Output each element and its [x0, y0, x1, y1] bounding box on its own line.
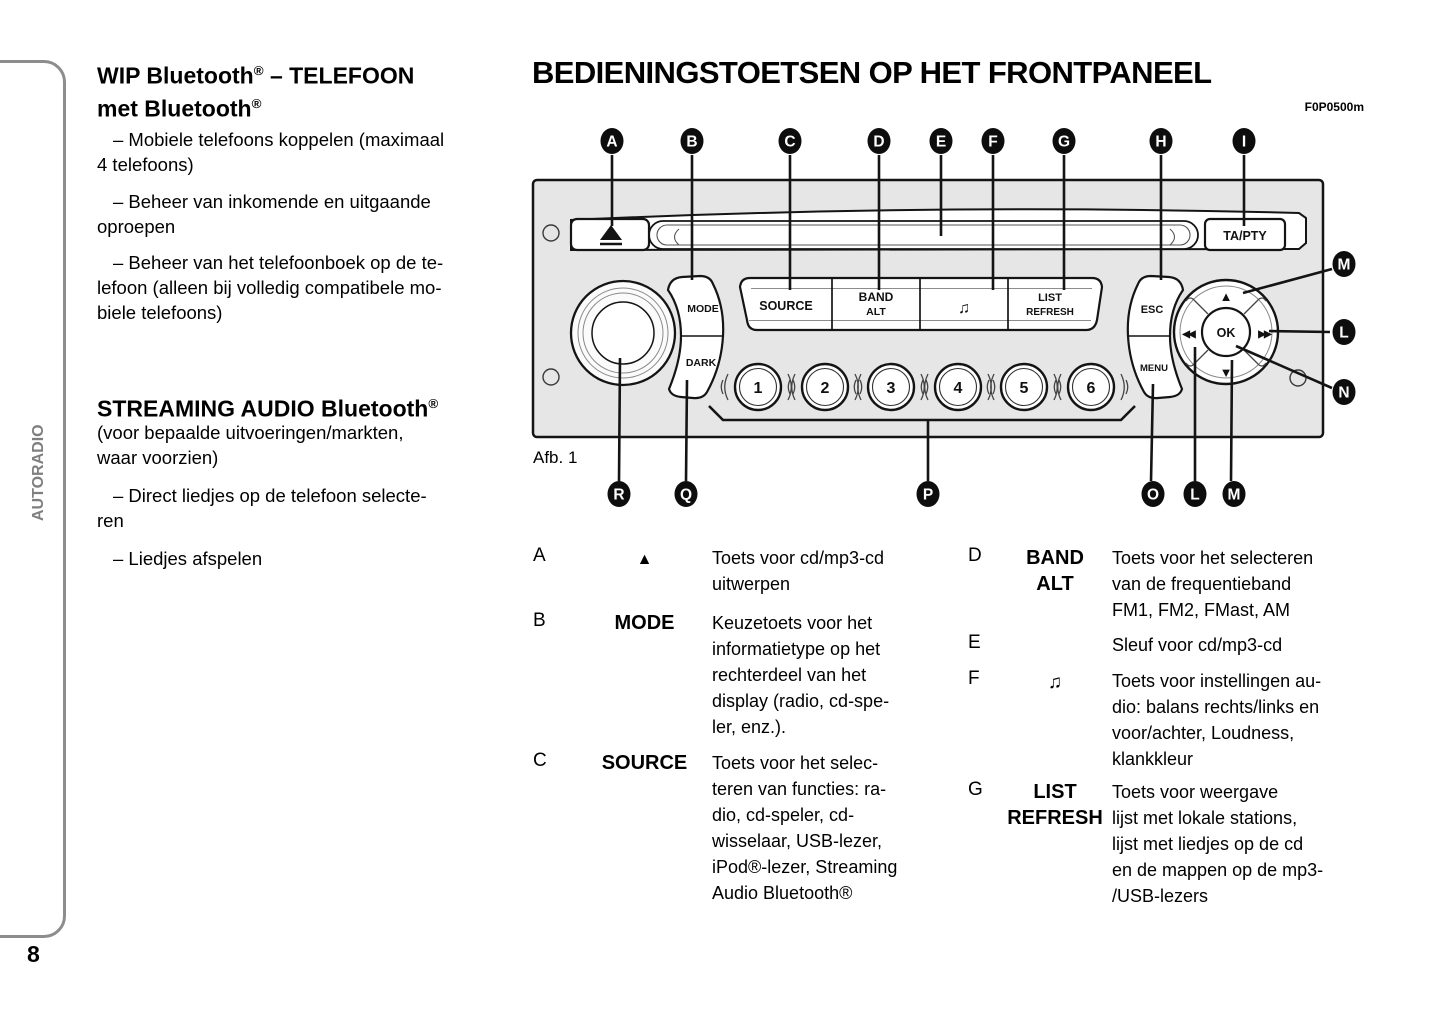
wip-heading-text: WIP Bluetooth [97, 63, 254, 89]
callout-N-right: N [1333, 379, 1356, 405]
ta-pty-label: TA/PTY [1223, 229, 1267, 243]
svg-text:D: D [873, 134, 884, 151]
svg-text:M: M [1338, 257, 1351, 274]
music-note-icon: ♫ [998, 668, 1112, 772]
svg-text:E: E [936, 134, 946, 151]
paragraph-bullet-2: – Beheer van inkomende en uitgaande opro… [97, 189, 529, 239]
esc-label: ESC [1141, 304, 1164, 316]
svg-text:M: M [1228, 487, 1241, 504]
callout-F: F [982, 128, 1005, 154]
definition-letter: B [533, 610, 577, 740]
callout-A: A [601, 128, 624, 154]
preset-1-label: 1 [754, 380, 763, 397]
svg-text:P: P [923, 487, 933, 504]
registered-mark: ® [252, 96, 262, 111]
definition-row-B: B MODE Keuzetoets voor het informatietyp… [533, 610, 933, 740]
source-label: SOURCE [759, 299, 812, 313]
callout-E: E [930, 128, 953, 154]
section-side-label: AUTORADIO [30, 424, 48, 521]
eject-button [571, 219, 649, 250]
callout-badges-right: M L N [1333, 251, 1356, 405]
definition-row-A: A ▲ Toets voor cd/mp3-cd uitwerpen [533, 545, 933, 597]
definition-row-F: F ♫ Toets voor instellingen au- dio: bal… [968, 668, 1376, 772]
callout-L-right: L [1333, 319, 1356, 345]
page-title: BEDIENINGSTOETSEN OP HET FRONTPANEEL [532, 55, 1211, 91]
paragraph-bullet-1: – Mobiele telefoons koppelen (maximaal 4… [97, 127, 529, 177]
callout-M-right: M [1333, 251, 1356, 277]
streaming-heading: STREAMING AUDIO Bluetooth® [97, 390, 438, 423]
svg-text:R: R [613, 487, 624, 504]
menu-label: MENU [1140, 363, 1168, 374]
preset-6-label: 6 [1087, 380, 1096, 397]
definition-desc: Keuzetoets voor het informatietype op he… [712, 610, 933, 740]
callout-P: P [917, 481, 940, 507]
definition-letter: A [533, 545, 577, 597]
definition-letter: G [968, 779, 998, 909]
definition-desc: Toets voor instellingen au- dio: balans … [1112, 668, 1376, 772]
page-number: 8 [27, 941, 40, 968]
mode-label: MODE [687, 303, 719, 315]
paragraph-bullet-5: – Liedjes afspelen [97, 546, 529, 571]
definition-row-C: C SOURCE Toets voor het selec- teren van… [533, 750, 933, 906]
callout-C: C [779, 128, 802, 154]
svg-text:I: I [1242, 134, 1246, 151]
wip-heading: WIP Bluetooth® – TELEFOONmet Bluetooth® [97, 57, 414, 122]
figure-code: F0P0500m [1254, 100, 1364, 114]
preset-3-label: 3 [887, 380, 896, 397]
list-label: LIST [1038, 292, 1062, 304]
callout-L-bottom: L [1184, 481, 1207, 507]
svg-text:B: B [686, 134, 697, 151]
callout-M-bottom: M [1223, 481, 1246, 507]
function-button-group: SOURCE BAND ALT ♫ LIST REFRESH [740, 278, 1102, 330]
svg-text:C: C [784, 134, 795, 151]
definition-desc: Toets voor cd/mp3-cd uitwerpen [712, 545, 933, 597]
paragraph-bullet-4: – Direct liedjes op de telefoon selecte-… [97, 483, 529, 533]
callout-O: O [1142, 481, 1165, 507]
preset-4-label: 4 [954, 380, 963, 397]
callout-Q: Q [675, 481, 698, 507]
definition-desc: Sleuf voor cd/mp3-cd [1112, 632, 1376, 658]
definition-row-G: G LIST REFRESH Toets voor weergave lijst… [968, 779, 1376, 909]
eject-icon: ▲ [577, 545, 712, 597]
callout-D: D [868, 128, 891, 154]
svg-text:G: G [1058, 134, 1070, 151]
callout-G: G [1053, 128, 1076, 154]
wip-heading-text-3: met Bluetooth [97, 95, 252, 121]
definition-desc: Toets voor weergave lijst met lokale sta… [1112, 779, 1376, 909]
svg-text:Q: Q [680, 487, 692, 504]
definition-desc: Toets voor het selecteren van de frequen… [1112, 545, 1376, 623]
volume-knob [571, 281, 675, 385]
directional-pad: OK ▲ ▼ ◀◀ ▶▶ [1174, 280, 1278, 384]
arrow-up-icon: ▲ [1220, 289, 1233, 304]
svg-text:L: L [1339, 325, 1348, 342]
preset-5-label: 5 [1020, 380, 1029, 397]
registered-mark: ® [254, 63, 264, 78]
paragraph-bullet-3: – Beheer van het telefoonboek op de te- … [97, 250, 529, 325]
definition-label [998, 632, 1112, 658]
definition-desc: Toets voor het selec- teren van functies… [712, 750, 933, 906]
svg-text:L: L [1190, 487, 1199, 504]
preset-2-label: 2 [821, 380, 830, 397]
arrow-down-icon: ▼ [1220, 365, 1233, 380]
svg-text:H: H [1155, 134, 1166, 151]
streaming-subnote: (voor bepaalde uitvoeringen/markten, waa… [97, 420, 529, 470]
dark-label: DARK [686, 357, 717, 369]
svg-text:N: N [1338, 385, 1349, 402]
svg-text:F: F [988, 134, 997, 151]
definition-label: LIST REFRESH [998, 779, 1112, 909]
definition-label: MODE [577, 610, 712, 740]
registered-mark: ® [428, 396, 438, 411]
definition-row-E: E Sleuf voor cd/mp3-cd [968, 632, 1376, 658]
wip-heading-text-2: – TELEFOON [264, 63, 415, 89]
callout-badges-bottom: R Q P O L M [608, 481, 1246, 507]
definition-letter: F [968, 668, 998, 772]
figure-caption: Afb. 1 [533, 448, 577, 468]
callout-R: R [608, 481, 631, 507]
alt-label: ALT [866, 306, 886, 318]
definition-label: SOURCE [577, 750, 712, 906]
definition-letter: D [968, 545, 998, 623]
svg-text:A: A [606, 134, 617, 151]
definition-label: BAND ALT [998, 545, 1112, 623]
cd-slot [649, 221, 1198, 249]
definition-row-D: D BAND ALT Toets voor het selecteren van… [968, 545, 1376, 623]
front-panel-diagram: TA/PTY MODE DARK SOURCE BAND ALT ♫ [530, 118, 1390, 548]
streaming-heading-text: STREAMING AUDIO Bluetooth [97, 396, 428, 422]
refresh-label: REFRESH [1026, 307, 1074, 318]
callout-H: H [1150, 128, 1173, 154]
definition-letter: C [533, 750, 577, 906]
band-label: BAND [859, 290, 894, 304]
ok-label: OK [1217, 326, 1236, 340]
callout-I: I [1233, 128, 1256, 154]
callout-badges-top: A B C D E F G H I [601, 128, 1256, 154]
definition-letter: E [968, 632, 998, 658]
radio-panel: TA/PTY MODE DARK SOURCE BAND ALT ♫ [533, 180, 1323, 437]
audio-settings-note-icon: ♫ [958, 300, 970, 317]
svg-text:O: O [1147, 487, 1159, 504]
callout-B: B [681, 128, 704, 154]
